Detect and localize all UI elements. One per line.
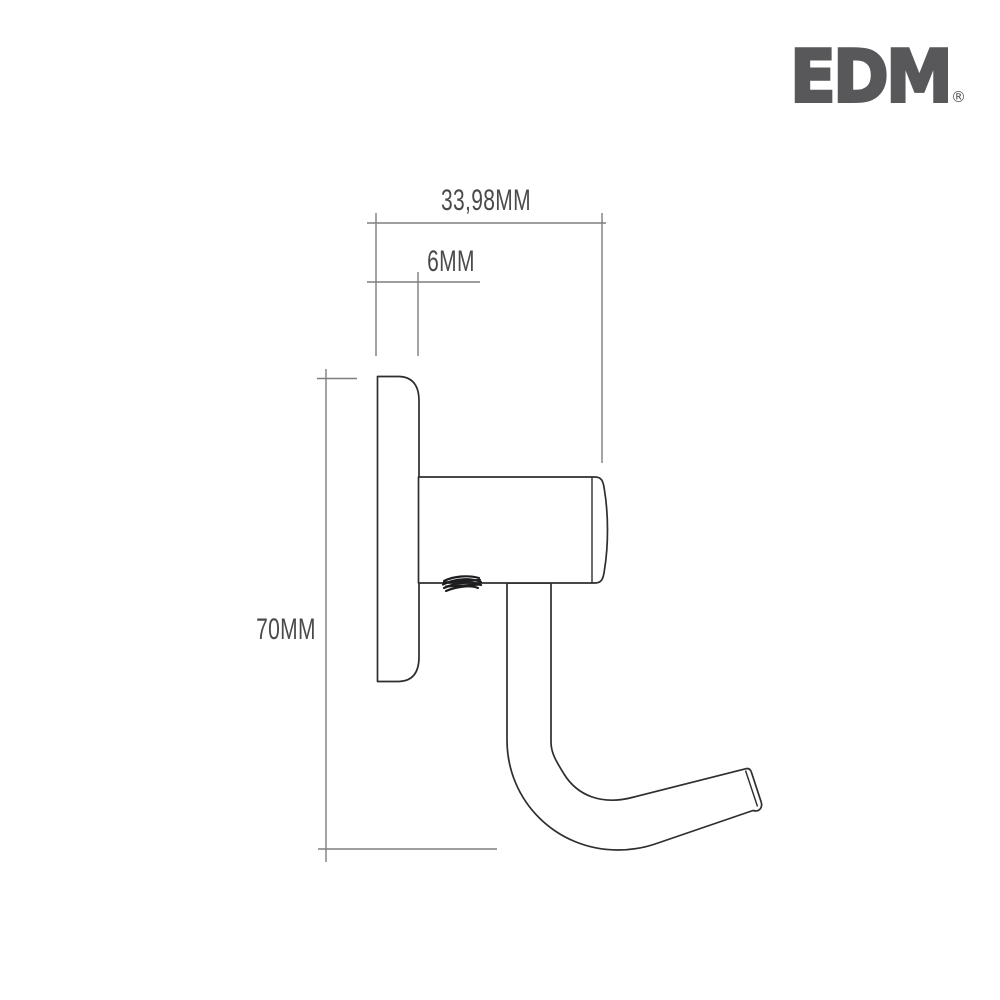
wall-plate <box>378 377 420 682</box>
registered-trademark-mark: ® <box>951 88 966 106</box>
hook-arm <box>507 583 762 850</box>
mounting-cylinder <box>419 477 608 583</box>
dimension-label-width: 33,98MM <box>441 184 531 218</box>
dimension-label-plate-thickness: 6MM <box>427 245 475 279</box>
technical-drawing: EDM ® <box>0 0 1000 1000</box>
edm-logo: EDM ® <box>790 35 966 119</box>
product-drawing-page: EDM ® 33,98MM 6MM 70MM <box>0 0 1000 1000</box>
hook-outline <box>378 377 762 851</box>
dimension-thickness-lines <box>367 272 480 356</box>
dimension-label-height: 70MM <box>256 613 316 647</box>
edm-logo-text: EDM <box>790 35 950 119</box>
